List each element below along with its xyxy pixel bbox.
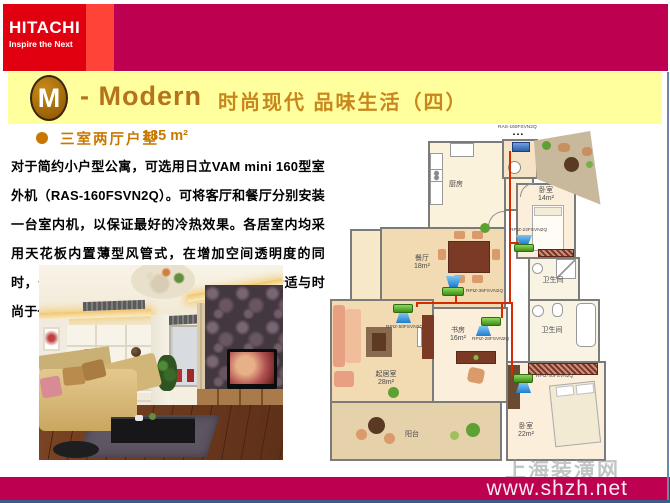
plant — [466, 423, 480, 437]
pipe — [455, 295, 457, 304]
room-name: 餐厅 — [400, 255, 444, 263]
photo-tv-screen — [230, 352, 274, 384]
photo-tv-stand — [197, 389, 283, 405]
room-area: 18m² — [400, 263, 444, 271]
footer-url[interactable]: www.shzh.net — [486, 477, 628, 500]
dining-chair — [472, 275, 483, 283]
terrace-plant — [586, 161, 593, 168]
room-area: 22m² — [502, 431, 550, 439]
pipe — [511, 302, 513, 376]
unit-label: RPIZ-50FSVN2Q — [386, 325, 423, 330]
sofa — [345, 309, 361, 363]
balcony-table — [368, 417, 385, 434]
title-english: - Modern — [80, 81, 202, 112]
plant — [450, 431, 459, 440]
photo-picture-frame — [43, 327, 60, 351]
room-label-bath2: 卫生间 — [528, 327, 576, 335]
footer-bar: www.shzh.net — [0, 477, 670, 500]
photo-decor — [149, 413, 156, 420]
pipe — [416, 302, 418, 307]
hitachi-logo: HITACHI Inspire the Next — [3, 4, 86, 71]
room-name: 卫生间 — [528, 327, 576, 335]
unit-label: RPIZ-40FSVN2Q — [536, 374, 573, 379]
indoor-unit — [481, 317, 501, 326]
coffee-table — [372, 333, 386, 351]
terrace-plant — [542, 141, 551, 150]
bathtub — [576, 303, 596, 347]
terrace-seat — [558, 143, 570, 152]
plant — [388, 387, 399, 398]
dining-chair — [492, 249, 500, 260]
room-label-living: 起居室 28m² — [358, 371, 414, 387]
unit-label: RPIZ-22FSVN2Q — [510, 228, 547, 233]
room-label-kitchen: 厨房 — [436, 181, 476, 189]
red-stripe — [86, 4, 114, 71]
floor-plan: RAS-160FSVN2Q ▲▲▲ — [330, 125, 630, 471]
bed-pillow — [576, 383, 595, 395]
tv — [417, 327, 422, 347]
desk-chair — [467, 367, 486, 385]
room-label-bedroom14: 卧室 14m² — [518, 187, 574, 203]
rug-hatch — [538, 249, 574, 257]
desk — [456, 351, 496, 364]
slide-right-border — [667, 72, 669, 503]
indoor-unit — [393, 304, 413, 313]
armchair — [334, 371, 354, 387]
room-name: 书房 — [436, 327, 480, 335]
dining-chair — [454, 231, 465, 239]
outdoor-unit-arrows: ▲▲▲ — [512, 132, 524, 137]
photo-cushion — [39, 375, 62, 398]
toilet — [532, 263, 543, 274]
hitachi-tagline: Inspire the Next — [9, 39, 73, 49]
title-band: M - Modern 时尚现代 品味生活（四） — [8, 72, 662, 124]
photo-stool — [53, 441, 99, 458]
indoor-unit — [514, 244, 534, 252]
content-card: 三室两厅户型 135 m² 对于简约小户型公寓，可选用日立VAM mini 16… — [8, 124, 662, 478]
toilet — [552, 303, 563, 317]
bed-pillow — [534, 207, 562, 216]
room-label-balcony: 阳台 — [390, 431, 434, 439]
terrace-seat — [582, 147, 592, 156]
room-name: 卧室 — [502, 423, 550, 431]
balcony-chair — [356, 429, 367, 440]
photo-decor — [135, 415, 143, 421]
dining-table — [448, 241, 490, 273]
photo-plant — [157, 355, 177, 391]
photo-dining-chair — [187, 369, 194, 382]
room-name: 卫生间 — [528, 277, 578, 285]
room-label-bath1: 卫生间 — [528, 277, 578, 285]
sink — [532, 305, 544, 317]
room-label-dining: 餐厅 18m² — [400, 255, 444, 271]
room-name: 卧室 — [518, 187, 574, 195]
indoor-unit — [442, 287, 464, 296]
photo-coffee-table — [111, 417, 195, 443]
hitachi-wordmark: HITACHI — [9, 18, 80, 38]
top-magenta-band — [114, 4, 668, 71]
room-name: 起居室 — [358, 371, 414, 379]
pipe — [501, 302, 503, 318]
pipe — [416, 302, 511, 304]
room-area: 14m² — [518, 195, 574, 203]
shower — [556, 259, 576, 279]
kitchen-counter — [450, 143, 474, 157]
slide: HITACHI Inspire the Next M - Modern 时尚现代… — [0, 0, 670, 503]
room-label-bedroom22: 卧室 22m² — [502, 423, 550, 439]
indoor-unit — [513, 374, 533, 383]
modern-badge-icon: M — [30, 75, 68, 121]
unit-label: RPIZ-28FSVN2Q — [472, 337, 509, 342]
living-room-photo — [39, 265, 283, 460]
sofa — [333, 305, 345, 367]
bed-pillow — [556, 385, 575, 397]
plant — [480, 223, 490, 233]
room-name: 厨房 — [436, 181, 476, 189]
terrace-table — [564, 157, 579, 172]
outdoor-unit-label: RAS-160FSVN2Q — [498, 125, 537, 130]
tv-cabinet — [422, 315, 434, 359]
unit-label: RPIZ-36FSVN2Q — [466, 289, 503, 294]
title-chinese: 时尚现代 品味生活（四） — [218, 86, 468, 115]
outdoor-unit — [512, 142, 530, 152]
room-name: 阳台 — [390, 431, 434, 439]
room-area: 28m² — [358, 379, 414, 387]
